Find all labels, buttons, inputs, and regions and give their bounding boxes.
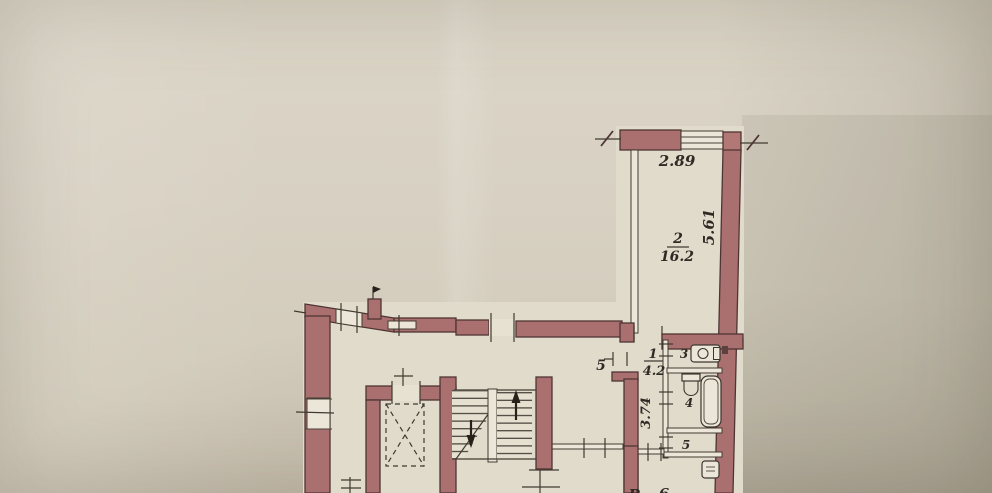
wall-top-left-block xyxy=(620,130,681,150)
appliance-icon xyxy=(702,461,719,478)
stairs-divider xyxy=(488,389,497,462)
room2-number: 2 xyxy=(672,231,683,247)
wall-segment xyxy=(456,320,489,335)
wall-segment xyxy=(516,321,622,337)
partition-room2-left xyxy=(631,150,638,333)
dimension-top-width: 2.89 xyxy=(658,152,696,170)
window xyxy=(681,131,723,149)
wall-jog xyxy=(620,323,634,342)
room3-number: 3 xyxy=(680,347,688,361)
bathtub-icon xyxy=(701,376,721,427)
partition-5-bottom xyxy=(664,452,722,457)
dimension-right-depth: 5.61 xyxy=(700,209,718,246)
elevator-left-wall xyxy=(366,400,380,493)
bottom-partial-text-left: Р xyxy=(627,486,640,493)
room1-number: 1 xyxy=(648,347,657,362)
living-room-number: 5 xyxy=(596,358,606,374)
room5-closet-number: 5 xyxy=(682,438,690,452)
dimension-hall-depth: 3.74 xyxy=(639,397,654,429)
floorplan-drawing: 2.89 5.61 2 16.2 5 1 4.2 3.74 3 4 5 Р 6 xyxy=(0,0,992,493)
wall-stub xyxy=(368,286,381,319)
wall-top-right-block xyxy=(723,132,741,152)
room2-area: 16.2 xyxy=(660,249,694,265)
scan-shadow-band xyxy=(742,115,992,493)
room4-number: 4 xyxy=(685,396,693,410)
wall-vent-mark xyxy=(722,346,728,354)
floorplan-scan: 2.89 5.61 2 16.2 5 1 4.2 3.74 3 4 5 Р 6 xyxy=(0,0,992,493)
window xyxy=(296,398,334,429)
partition-3-4 xyxy=(667,368,722,373)
bottom-partial-text-right: 6 xyxy=(659,485,670,493)
stairhall-right-wall xyxy=(536,377,552,469)
partition-4-5 xyxy=(667,428,722,433)
room1-area: 4.2 xyxy=(643,364,666,379)
washbasin-icon xyxy=(691,345,720,362)
